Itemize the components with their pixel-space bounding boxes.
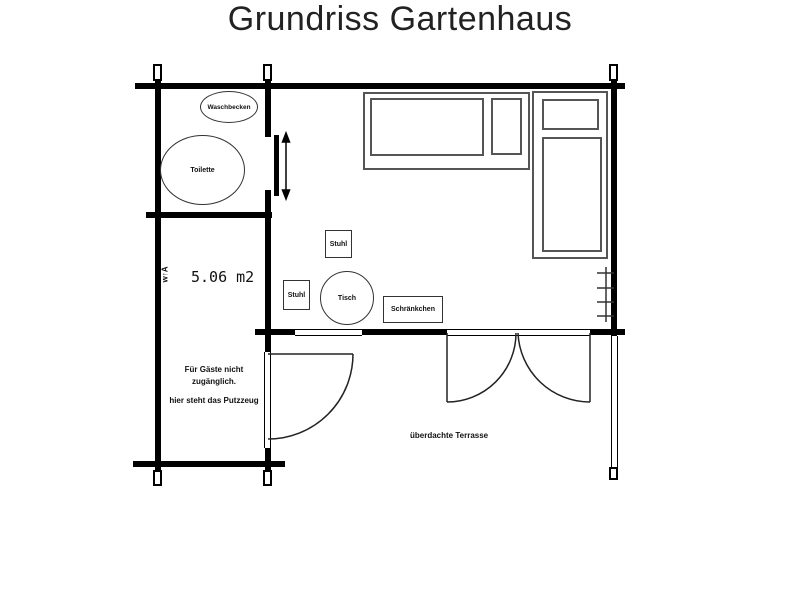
storage-note: Für Gäste nicht zugänglich. hier steht d… <box>158 364 270 407</box>
storage-note-line1: Für Gäste nicht <box>158 364 270 376</box>
water-connection-marker: w↑A <box>161 262 170 288</box>
storage-area-label: 5.06 m2 <box>191 268 254 286</box>
storage-note-line2: zugänglich. <box>158 376 270 388</box>
french-door-right <box>518 333 590 402</box>
door-swings-overlay <box>0 0 800 600</box>
storage-note-line3: hier steht das Putzzeug <box>158 395 270 407</box>
sliding-door-arrow-icon <box>283 133 290 199</box>
terrace-label: überdachte Terrasse <box>410 431 488 440</box>
plan-title: Grundriss Gartenhaus <box>0 0 800 39</box>
french-door-left <box>447 333 516 402</box>
storage-door <box>268 354 353 439</box>
floor-plan: Waschbecken Toilette Stuhl Stuhl Tisch S… <box>0 0 800 600</box>
ladder <box>597 267 614 322</box>
